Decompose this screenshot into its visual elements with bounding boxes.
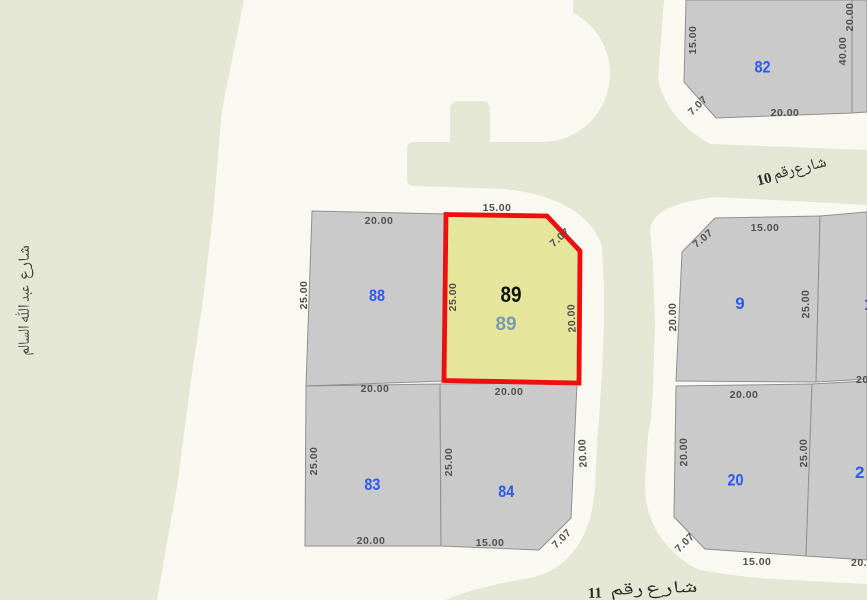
svg-text:25.00: 25.00	[308, 447, 320, 476]
svg-text:20.00: 20.00	[851, 557, 867, 569]
svg-text:20.00: 20.00	[365, 215, 394, 227]
svg-text:25.00: 25.00	[298, 281, 310, 310]
svg-text:82: 82	[755, 58, 771, 77]
svg-text:20.00: 20.00	[678, 438, 691, 467]
svg-text:15.00: 15.00	[751, 222, 780, 234]
svg-text:2: 2	[855, 463, 864, 482]
svg-text:20.00: 20.00	[667, 303, 680, 332]
svg-text:25.00: 25.00	[447, 283, 459, 312]
svg-text:20.00: 20.00	[565, 303, 578, 332]
svg-text:20.00: 20.00	[357, 535, 386, 547]
svg-text:20.00: 20.00	[856, 374, 867, 386]
svg-text:20.00: 20.00	[361, 383, 390, 395]
svg-text:89: 89	[496, 313, 517, 335]
svg-text:20.00: 20.00	[730, 389, 759, 401]
svg-text:20.00: 20.00	[576, 438, 589, 467]
svg-text:25.00: 25.00	[798, 439, 811, 468]
svg-text:40.00: 40.00	[837, 37, 849, 66]
svg-text:15.00: 15.00	[476, 537, 505, 549]
svg-text:20.00: 20.00	[844, 3, 856, 32]
svg-text:20.00: 20.00	[495, 386, 524, 398]
svg-text:11: 11	[588, 586, 603, 600]
svg-text:9: 9	[735, 294, 744, 313]
svg-text:84: 84	[498, 482, 514, 501]
svg-text:20.00: 20.00	[771, 107, 800, 119]
svg-text:15.00: 15.00	[743, 556, 772, 568]
svg-text:25.00: 25.00	[800, 290, 813, 319]
svg-text:88: 88	[369, 286, 385, 305]
svg-text:15.00: 15.00	[687, 26, 699, 55]
svg-text:15.00: 15.00	[483, 202, 512, 214]
svg-text:20: 20	[728, 471, 744, 490]
svg-text:83: 83	[364, 475, 380, 494]
svg-text:25.00: 25.00	[443, 448, 455, 477]
svg-text:89: 89	[501, 282, 522, 307]
